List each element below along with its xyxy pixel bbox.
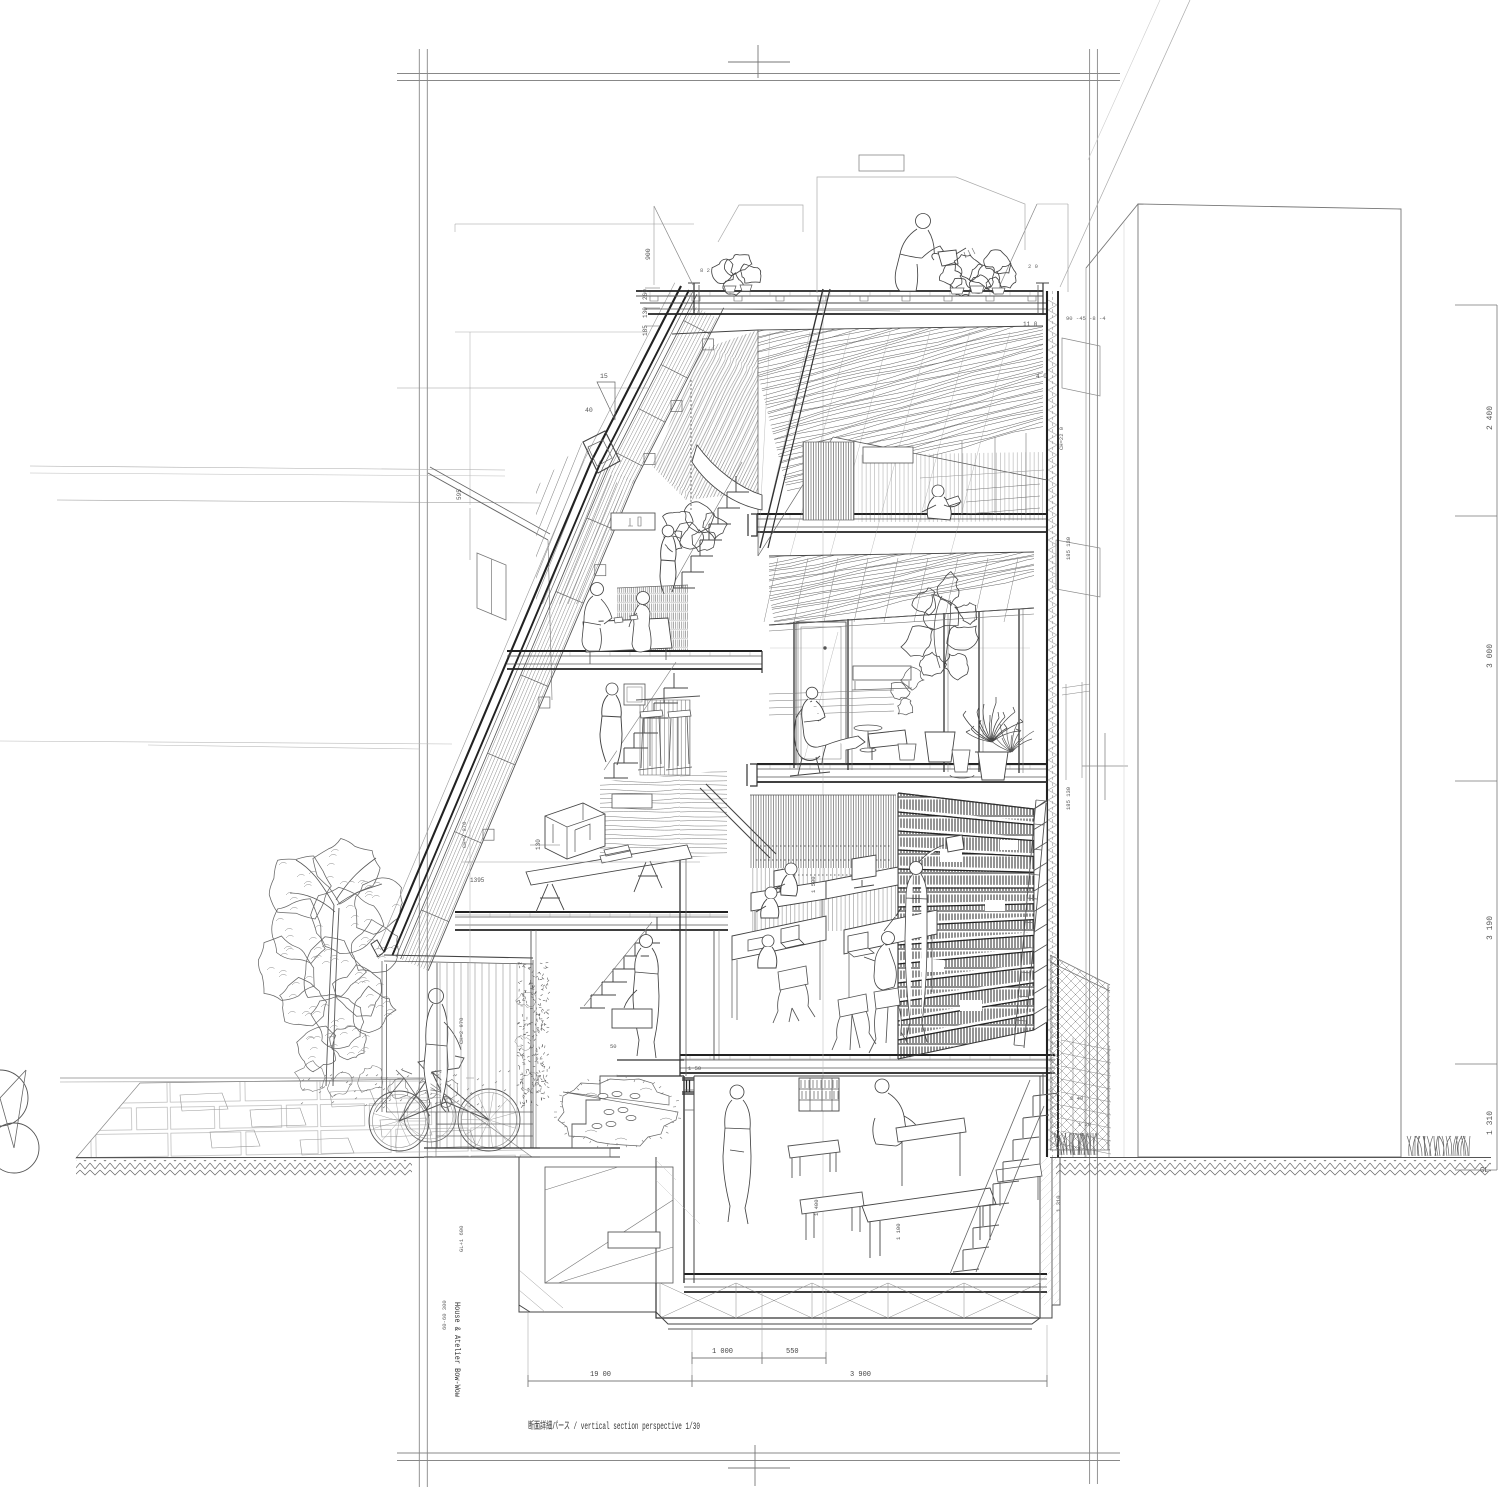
svg-text:15: 15	[600, 373, 608, 380]
svg-text:90 -45 -8 -4: 90 -45 -8 -4	[1066, 315, 1106, 322]
svg-text:3 900: 3 900	[850, 1371, 871, 1379]
svg-text:595: 595	[456, 489, 463, 500]
svg-text:3 000: 3 000	[1486, 644, 1495, 668]
svg-text:3 190: 3 190	[1486, 916, 1495, 940]
svg-text:185 130: 185 130	[1065, 537, 1072, 560]
svg-text:2 400: 2 400	[1486, 406, 1495, 430]
svg-text:CH=2 970: CH=2 970	[458, 1018, 465, 1044]
svg-text:House & Atelier Bow-Wow: House & Atelier Bow-Wow	[452, 1302, 462, 1398]
svg-text:185: 185	[642, 325, 649, 336]
svg-text:CH=2 870: CH=2 870	[461, 822, 468, 848]
svg-text:1 100: 1 100	[895, 1223, 902, 1240]
svg-text:1 310: 1 310	[1486, 1111, 1495, 1135]
svg-text:CH=22 0: CH=22 0	[1058, 427, 1065, 450]
svg-text:4 0: 4 0	[1036, 373, 1047, 380]
svg-text:40: 40	[585, 407, 593, 414]
svg-text:1 310: 1 310	[1055, 1195, 1062, 1212]
svg-text:60-60 300: 60-60 300	[441, 1300, 448, 1330]
svg-text:50: 50	[610, 1043, 617, 1050]
svg-text:GL+1 600: GL+1 600	[458, 1226, 465, 1252]
svg-text:550: 550	[786, 1348, 799, 1356]
svg-text:断面詳細パース / vertical section per: 断面詳細パース / vertical section perspective 1…	[528, 1419, 700, 1433]
svg-text:GL: GL	[1480, 1167, 1488, 1175]
svg-text:1395: 1395	[470, 877, 485, 884]
svg-text:1 000: 1 000	[712, 1348, 733, 1356]
svg-text:1 500: 1 500	[810, 876, 817, 893]
svg-text:900: 900	[645, 248, 652, 260]
svg-text:11 0: 11 0	[1023, 321, 1038, 328]
svg-text:130: 130	[642, 307, 649, 318]
svg-text:8 2: 8 2	[700, 267, 710, 274]
svg-text:2 0: 2 0	[1028, 263, 1038, 270]
svg-text:1 50: 1 50	[688, 1065, 701, 1072]
svg-text:1 400: 1 400	[813, 1199, 820, 1216]
svg-text:130: 130	[535, 839, 542, 850]
svg-text:185 130: 185 130	[1065, 787, 1072, 810]
svg-text:260: 260	[642, 289, 649, 300]
svg-text:19 00: 19 00	[590, 1371, 611, 1379]
